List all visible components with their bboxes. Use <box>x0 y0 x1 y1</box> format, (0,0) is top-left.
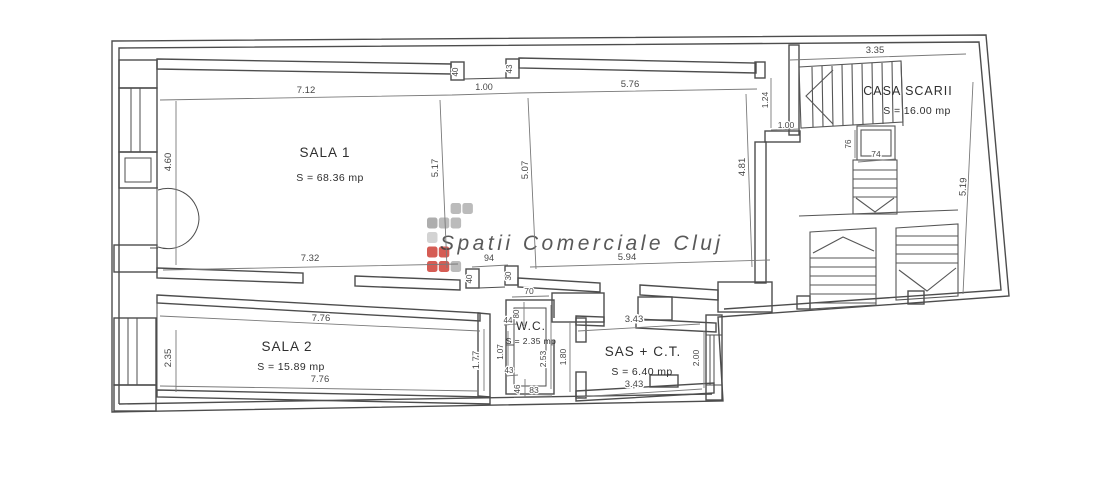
stair-flight-middle <box>853 160 897 214</box>
dim-alcove-right: 43 <box>505 64 514 73</box>
wall-notch <box>797 296 810 309</box>
dim-wc-step-upper: 44 <box>504 316 513 325</box>
dim-shaft-height: 76 <box>844 139 853 148</box>
wall-pier <box>114 245 157 272</box>
sala2-walls <box>157 295 490 404</box>
dim-wc-bottom: 83 <box>529 385 539 395</box>
dim-wc-bottom-step: 46 <box>513 384 522 393</box>
dim-shaft-width: 74 <box>871 149 881 159</box>
dim-wc-height: 2.53 <box>538 350 548 367</box>
dim-sala2-top: 7.76 <box>312 313 331 324</box>
dim-sala2-bottom: 7.76 <box>311 374 330 385</box>
dim-passage: 94 <box>484 253 494 263</box>
room-label-sas: SAS + C.T. <box>605 344 681 359</box>
dim-alcove-left: 40 <box>451 67 460 76</box>
dim-sas-top: 3.43 <box>625 314 644 325</box>
dim-wc-left-upper: 80 <box>512 309 521 318</box>
dim-sala1-top-left: 7.12 <box>297 85 316 96</box>
dim-sala2-right: 1.77 <box>471 351 482 370</box>
dim-casa-top: 3.35 <box>866 45 885 56</box>
room-label-sala1: SALA 1 <box>299 145 350 160</box>
room-label-wc: W.C. <box>516 319 546 333</box>
room-label-casa-scarii: CASA SCARII <box>863 84 953 98</box>
dim-sala2-left: 2.35 <box>163 349 174 368</box>
dim-corridor-height: 1.80 <box>558 348 568 365</box>
floor-plan-page: Spatii Comerciale Cluj <box>0 0 1095 477</box>
dim-wc-top: 70 <box>524 286 534 296</box>
stair-landing-edge <box>799 210 958 216</box>
floor-plan-drawing: Spatii Comerciale Cluj <box>0 0 1095 477</box>
dim-sala1-top-mid: 1.00 <box>475 82 493 92</box>
dim-sala1-left: 4.60 <box>163 153 174 172</box>
dim-sala1-top-right: 5.76 <box>621 79 640 90</box>
dim-sala1-right: 4.81 <box>737 158 748 177</box>
watermark-text: Spatii Comerciale Cluj <box>440 232 724 255</box>
dim-sala1-bottom-right: 5.94 <box>618 252 637 263</box>
watermark: Spatii Comerciale Cluj <box>427 203 724 272</box>
dim-sala1-mid1: 5.17 <box>430 159 441 178</box>
dim-sala1-mid2: 5.07 <box>520 161 531 180</box>
stair-flight-lower-right <box>896 224 958 300</box>
sala1-walls <box>157 58 800 312</box>
room-area-sala1: S = 68.36 mp <box>296 172 364 184</box>
room-area-wc: S = 2.35 mp <box>506 336 556 346</box>
wall-pier <box>119 60 157 88</box>
room-label-sala2: SALA 2 <box>261 339 312 354</box>
dim-sala1-bottom-left: 7.32 <box>301 253 320 264</box>
window-upper <box>119 88 157 152</box>
dim-notch-left: 40 <box>465 274 474 283</box>
wall-pier <box>114 385 156 411</box>
stair-flight-lower-left <box>810 228 876 309</box>
wall-pier-inner <box>125 158 151 182</box>
left-facade <box>114 60 199 411</box>
room-area-sala2: S = 15.89 mp <box>257 361 325 373</box>
dim-stair-wall: 1.00 <box>778 120 795 130</box>
window-lower <box>114 318 156 385</box>
dim-notch-right: 30 <box>504 271 513 280</box>
dim-stair-hall: 1.24 <box>760 91 770 108</box>
room-labels: SALA 1 S = 68.36 mp CASA SCARII S = 16.0… <box>257 84 953 378</box>
room-area-sas: S = 6.40 mp <box>611 366 672 378</box>
room-area-casa-scarii: S = 16.00 mp <box>883 105 951 117</box>
dim-sas-bottom: 3.43 <box>625 379 644 390</box>
dim-wc-left-mid: 1.07 <box>496 344 505 360</box>
dim-wc-step-lower: 43 <box>505 366 514 375</box>
dim-sas-right: 2.00 <box>691 349 701 366</box>
dim-casa-right: 5.19 <box>958 177 970 196</box>
